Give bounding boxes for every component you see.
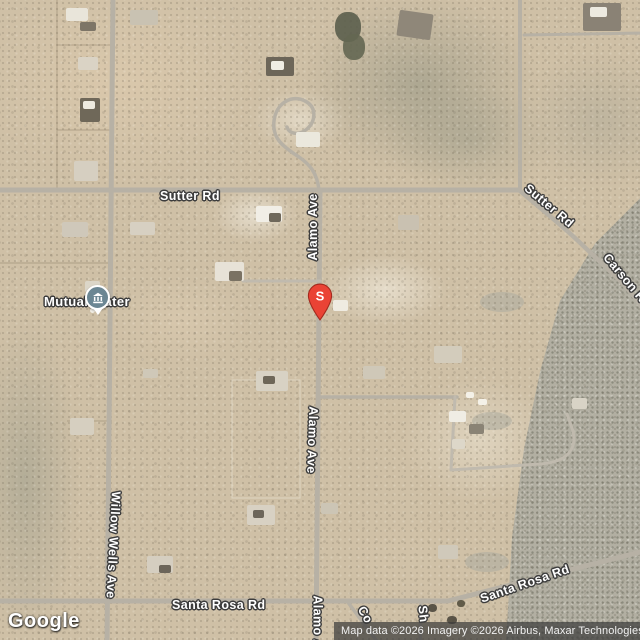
- attribution-text[interactable]: Map data ©2026 Imagery ©2026 Airbus, Max…: [341, 625, 640, 637]
- building: [466, 392, 474, 398]
- building: [130, 10, 158, 25]
- road-label-alamo-ave-top: Alamo Ave: [307, 193, 320, 260]
- building: [263, 376, 275, 384]
- road-label-alamo-ave-bottom: Alamo Ave: [311, 595, 324, 640]
- building: [271, 61, 284, 70]
- building: [62, 222, 88, 237]
- attribution-bar: Map data ©2026 Imagery ©2026 Airbus, Max…: [334, 622, 640, 640]
- building: [333, 300, 348, 311]
- marker-letter: S: [316, 289, 325, 304]
- building: [159, 565, 171, 573]
- building: [253, 510, 264, 518]
- road-label-santa-rosa-rd-west: Santa Rosa Rd: [172, 599, 265, 612]
- building: [70, 418, 94, 435]
- building: [296, 132, 320, 147]
- building: [143, 369, 158, 378]
- building: [434, 346, 462, 363]
- building: [363, 366, 385, 379]
- building: [66, 8, 88, 21]
- building: [74, 161, 98, 181]
- building: [398, 215, 419, 230]
- google-logo[interactable]: Google: [8, 610, 80, 633]
- tree: [457, 600, 465, 607]
- building: [469, 424, 484, 434]
- tree-cluster: [343, 34, 365, 60]
- town-hall-icon: [85, 285, 110, 310]
- building: [396, 10, 433, 40]
- road-label-sh-partial: Sh: [416, 605, 430, 623]
- satellite-map[interactable]: Sutter Rd Sutter Rd Carson Rd Alamo Ave …: [0, 0, 640, 640]
- building: [452, 439, 465, 449]
- road-label-sutter-rd-west: Sutter Rd: [160, 190, 220, 203]
- building: [449, 411, 466, 422]
- building: [590, 7, 607, 17]
- building: [130, 222, 155, 235]
- building: [78, 57, 98, 70]
- poi-pin-tip: [93, 308, 103, 315]
- building: [229, 271, 242, 281]
- building: [269, 213, 281, 222]
- road-label-alamo-ave-mid: Alamo Ave: [305, 406, 320, 474]
- mutual-water-poi-pin[interactable]: [85, 285, 110, 310]
- building: [321, 503, 338, 514]
- building: [572, 398, 587, 409]
- building: [80, 22, 96, 31]
- building: [438, 545, 458, 559]
- building: [83, 101, 95, 109]
- building: [478, 399, 487, 405]
